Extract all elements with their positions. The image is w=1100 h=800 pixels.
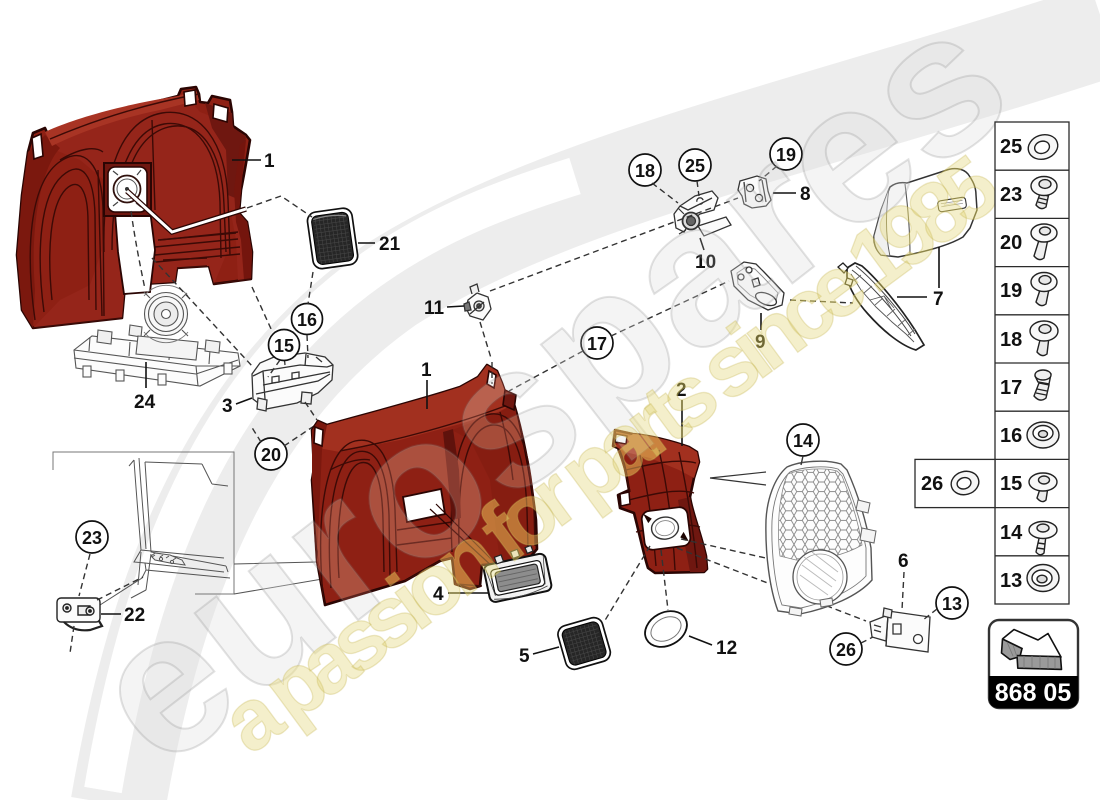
svg-text:868 05: 868 05: [995, 679, 1072, 707]
svg-text:23: 23: [82, 528, 102, 548]
svg-text:25: 25: [1000, 136, 1022, 158]
svg-text:26: 26: [921, 473, 943, 495]
svg-text:18: 18: [1000, 329, 1022, 351]
svg-text:6: 6: [898, 551, 909, 572]
svg-text:16: 16: [297, 310, 317, 330]
svg-text:24: 24: [134, 392, 156, 413]
svg-text:3: 3: [222, 396, 233, 417]
svg-text:12: 12: [716, 638, 737, 659]
svg-text:20: 20: [1000, 232, 1022, 254]
svg-text:15: 15: [1000, 473, 1022, 495]
svg-text:26: 26: [836, 640, 856, 660]
svg-text:13: 13: [942, 594, 962, 614]
svg-text:14: 14: [793, 431, 813, 451]
svg-text:13: 13: [1000, 570, 1022, 592]
svg-text:11: 11: [424, 298, 445, 319]
svg-text:16: 16: [1000, 425, 1022, 447]
svg-text:5: 5: [519, 646, 530, 667]
svg-text:14: 14: [1000, 522, 1023, 544]
svg-text:23: 23: [1000, 184, 1022, 206]
svg-text:1: 1: [264, 151, 275, 172]
svg-text:7: 7: [933, 289, 944, 310]
svg-text:21: 21: [379, 234, 401, 255]
svg-text:17: 17: [1000, 377, 1022, 399]
svg-text:19: 19: [1000, 280, 1022, 302]
svg-text:15: 15: [274, 336, 294, 356]
